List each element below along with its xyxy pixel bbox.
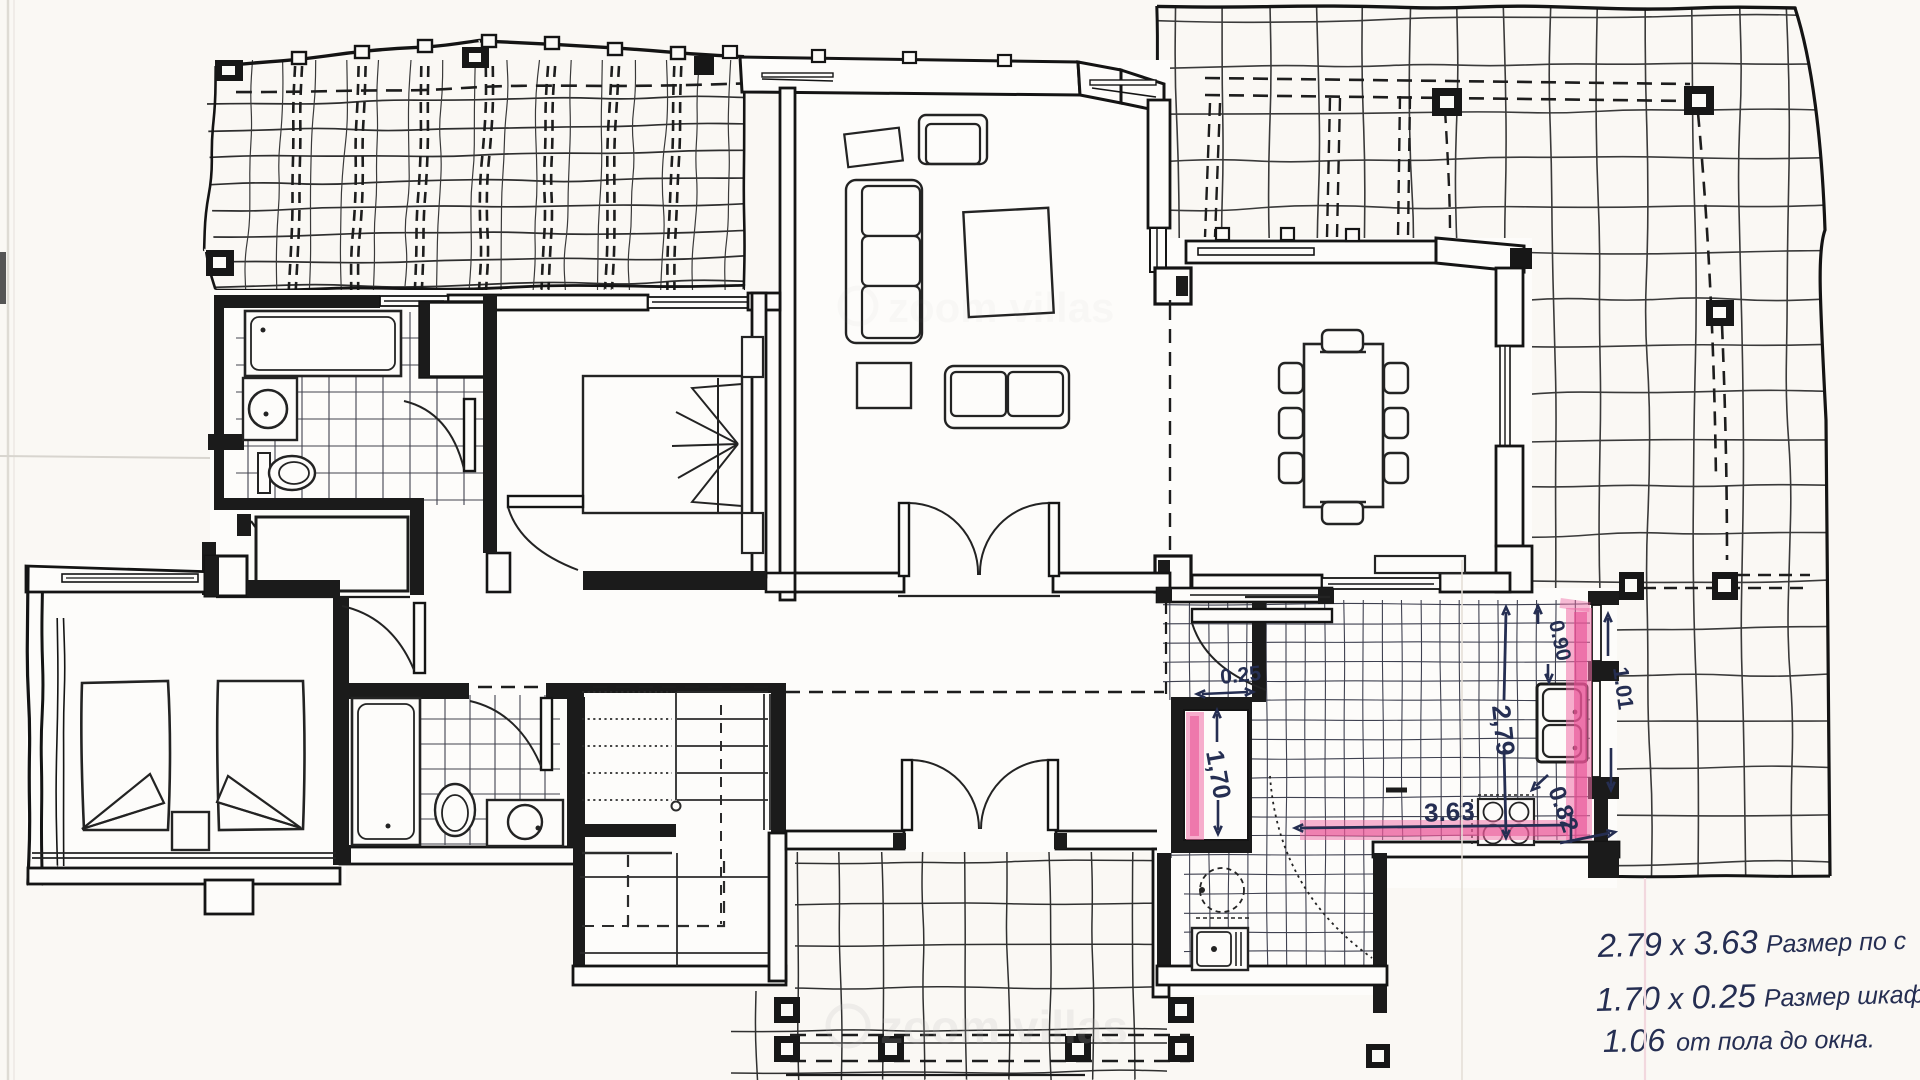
svg-text:zoom villas: zoom villas: [880, 1001, 1128, 1053]
svg-text:0.25: 0.25: [1219, 662, 1262, 689]
svg-text:zoom villas: zoom villas: [888, 284, 1114, 331]
svg-text:2,79: 2,79: [1486, 703, 1521, 756]
svg-text:3.63: 3.63: [1424, 796, 1476, 828]
